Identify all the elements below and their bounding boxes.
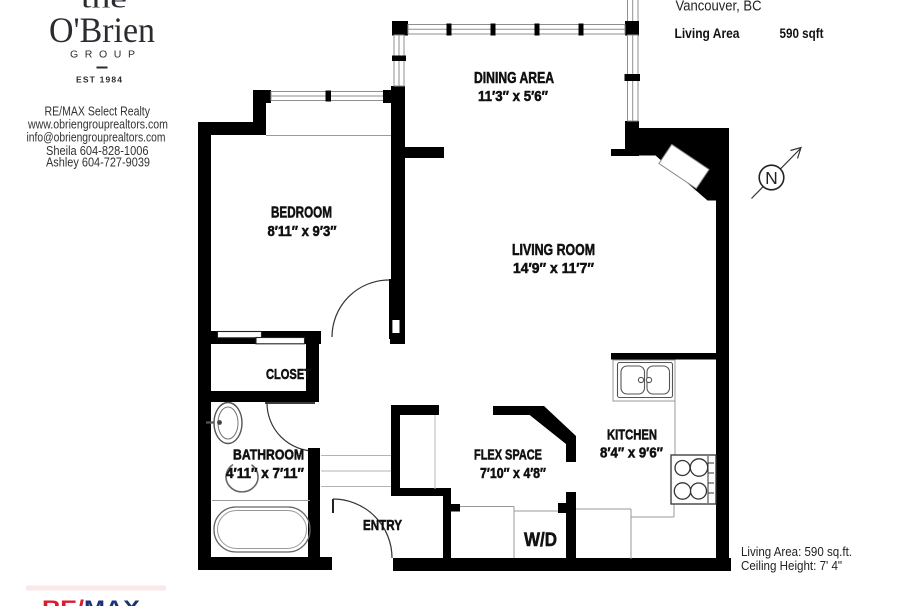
svg-text:FLEX SPACE: FLEX SPACE — [474, 447, 542, 464]
svg-text:RE/MAX: RE/MAX — [42, 597, 140, 606]
svg-text:CLOSET: CLOSET — [266, 366, 311, 383]
svg-text:ENTRY: ENTRY — [363, 517, 402, 534]
svg-text:LIVING ROOM: LIVING ROOM — [512, 242, 595, 259]
svg-text:14′9″ x 11′7″: 14′9″ x 11′7″ — [513, 260, 594, 277]
svg-text:BATHROOM: BATHROOM — [233, 447, 304, 464]
svg-text:7′10″ x 4′8″: 7′10″ x 4′8″ — [480, 466, 546, 482]
svg-text:Vancouver, BC: Vancouver, BC — [676, 0, 762, 15]
svg-text:N: N — [765, 168, 778, 188]
svg-text:O'Brien: O'Brien — [49, 10, 155, 50]
svg-text:BEDROOM: BEDROOM — [271, 205, 332, 222]
svg-text:Living Area: 590 sq.ft.: Living Area: 590 sq.ft. — [741, 544, 852, 559]
svg-text:Ceiling Height: 7' 4": Ceiling Height: 7' 4" — [741, 558, 842, 573]
svg-text:RE/MAX Select Realty: RE/MAX Select Realty — [45, 105, 151, 119]
svg-text:W/D: W/D — [524, 530, 557, 551]
svg-text:Ashley 604-727-9039: Ashley 604-727-9039 — [46, 156, 150, 170]
svg-text:8′4″ x 9′6″: 8′4″ x 9′6″ — [600, 446, 663, 462]
svg-text:DINING AREA: DINING AREA — [474, 70, 554, 87]
svg-text:KITCHEN: KITCHEN — [607, 427, 657, 444]
svg-text:EST 1984: EST 1984 — [76, 75, 122, 85]
svg-text:11′3″ x 5′6″: 11′3″ x 5′6″ — [478, 88, 548, 105]
svg-text:Living Area: Living Area — [675, 26, 740, 41]
svg-text:info@obriengrouprealtors.com: info@obriengrouprealtors.com — [27, 131, 166, 145]
svg-text:590 sqft: 590 sqft — [780, 26, 824, 41]
svg-text:4′11″ x 7′11″: 4′11″ x 7′11″ — [226, 466, 304, 482]
svg-text:www.obriengrouprealtors.com: www.obriengrouprealtors.com — [27, 118, 168, 132]
svg-text:8′11″ x 9′3″: 8′11″ x 9′3″ — [268, 223, 337, 240]
